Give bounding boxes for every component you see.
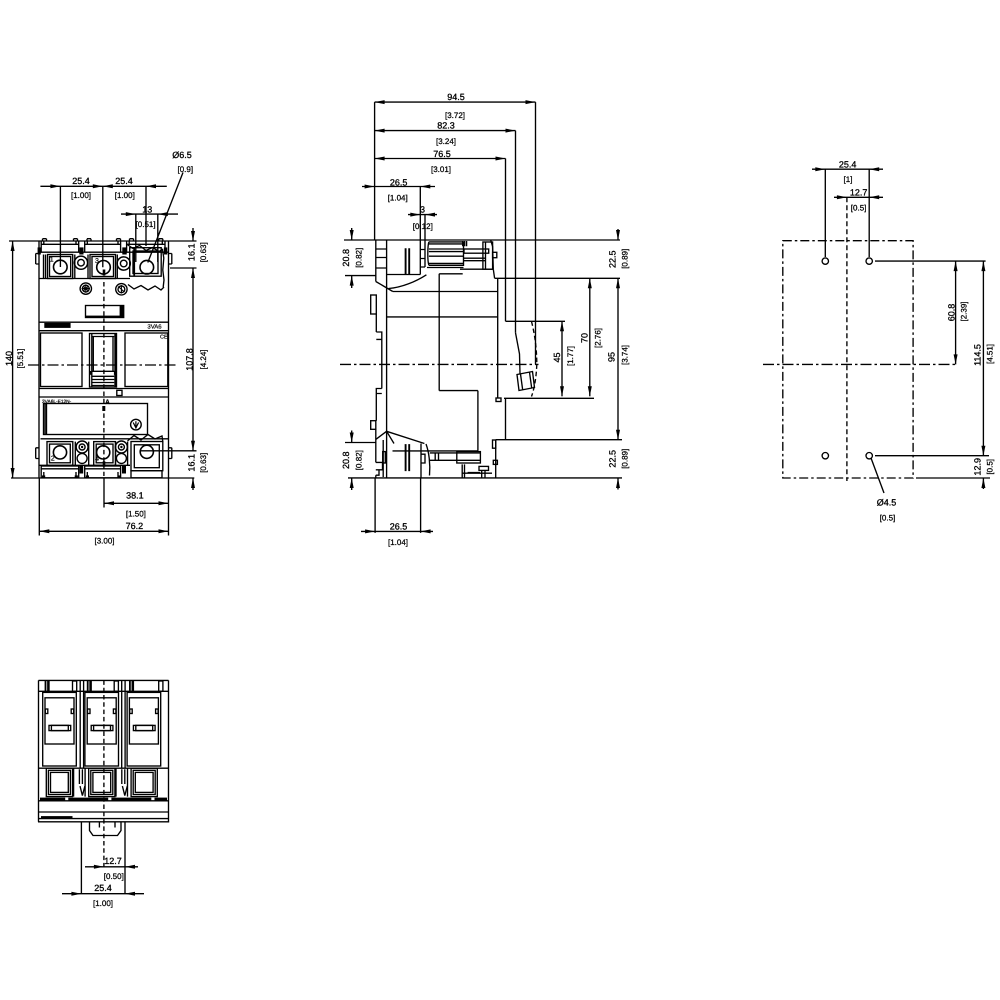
svg-text:[0.82]: [0.82] (355, 248, 364, 268)
svg-text:[1.50]: [1.50] (126, 510, 146, 519)
svg-text:3VA6L-E12N-__: 3VA6L-E12N-__ (42, 399, 77, 405)
svg-text:1: 1 (50, 257, 54, 264)
svg-text:[1.04]: [1.04] (388, 538, 408, 547)
svg-text:26.5: 26.5 (390, 177, 408, 187)
svg-text:25.4: 25.4 (94, 883, 112, 893)
svg-text:Ø4.5: Ø4.5 (877, 497, 897, 507)
svg-text:[0.50]: [0.50] (104, 872, 124, 881)
svg-text:[0.51]: [0.51] (136, 220, 156, 229)
svg-text:[0.89]: [0.89] (620, 449, 629, 469)
svg-text:2: 2 (51, 456, 55, 463)
svg-text:16.1: 16.1 (187, 454, 197, 472)
svg-text:[3.24]: [3.24] (436, 137, 456, 146)
svg-text:22.5: 22.5 (608, 450, 618, 468)
svg-text:[3.01]: [3.01] (431, 165, 451, 174)
svg-text:12.7: 12.7 (104, 856, 122, 866)
svg-text:Ø6.5: Ø6.5 (172, 150, 192, 160)
svg-text:26.5: 26.5 (390, 522, 408, 532)
svg-text:20.8: 20.8 (341, 249, 351, 267)
svg-text:20.8: 20.8 (341, 451, 351, 469)
svg-text:45: 45 (552, 352, 562, 362)
svg-text:70: 70 (580, 333, 590, 343)
svg-text:[1.04]: [1.04] (388, 193, 408, 202)
svg-text:25.4: 25.4 (115, 176, 133, 186)
svg-text:[1.00]: [1.00] (71, 191, 91, 200)
svg-text:[0.82]: [0.82] (355, 450, 364, 470)
svg-text:[0.12]: [0.12] (413, 222, 433, 231)
svg-text:25.4: 25.4 (839, 159, 857, 169)
svg-text:12.7: 12.7 (850, 187, 868, 197)
svg-text:16.1: 16.1 (187, 244, 197, 262)
svg-text:[3.72]: [3.72] (445, 111, 465, 120)
svg-text:82.3: 82.3 (437, 120, 455, 130)
svg-text:[0.5]: [0.5] (986, 459, 995, 475)
svg-text:[2.76]: [2.76] (593, 328, 602, 348)
svg-text:[0.5]: [0.5] (880, 514, 896, 523)
svg-text:[3.00]: [3.00] (94, 536, 114, 545)
svg-text:12.9: 12.9 (973, 458, 983, 476)
svg-text:3VA6: 3VA6 (147, 324, 162, 331)
svg-text:22.5: 22.5 (608, 250, 618, 268)
svg-text:[1]: [1] (844, 175, 853, 184)
svg-text:76.5: 76.5 (433, 149, 451, 159)
svg-text:95: 95 (607, 352, 617, 362)
svg-text:114.5: 114.5 (973, 344, 983, 366)
svg-text:[4.51]: [4.51] (985, 344, 994, 364)
svg-text:25.4: 25.4 (72, 176, 90, 186)
svg-text:[0.63]: [0.63] (199, 242, 208, 262)
svg-text:38.1: 38.1 (126, 491, 144, 501)
svg-text:[0.89]: [0.89] (620, 249, 629, 269)
svg-text:[0.5]: [0.5] (851, 203, 867, 212)
svg-text:107.8: 107.8 (185, 348, 195, 371)
svg-text:[0.63]: [0.63] (199, 453, 208, 473)
svg-text:60.8: 60.8 (947, 304, 957, 322)
svg-text:13: 13 (142, 205, 152, 215)
svg-text:3: 3 (420, 204, 425, 214)
svg-text:[5.51]: [5.51] (16, 348, 25, 368)
svg-text:4: 4 (95, 456, 99, 463)
svg-text:CE: CE (160, 335, 168, 341)
svg-text:[2.39]: [2.39] (959, 301, 968, 321)
svg-text:94.5: 94.5 (447, 92, 465, 102)
svg-text:76.2: 76.2 (126, 521, 144, 531)
svg-text:[1.77]: [1.77] (566, 346, 575, 366)
svg-text:A: A (105, 399, 110, 406)
svg-text:[3.74]: [3.74] (620, 345, 629, 365)
svg-text:3: 3 (95, 258, 99, 265)
svg-text:[1.00]: [1.00] (93, 899, 113, 908)
svg-text:[1.00]: [1.00] (115, 191, 135, 200)
svg-text:140: 140 (4, 351, 14, 366)
svg-text:[4.24]: [4.24] (199, 349, 208, 369)
svg-text:[0.9]: [0.9] (178, 165, 194, 174)
